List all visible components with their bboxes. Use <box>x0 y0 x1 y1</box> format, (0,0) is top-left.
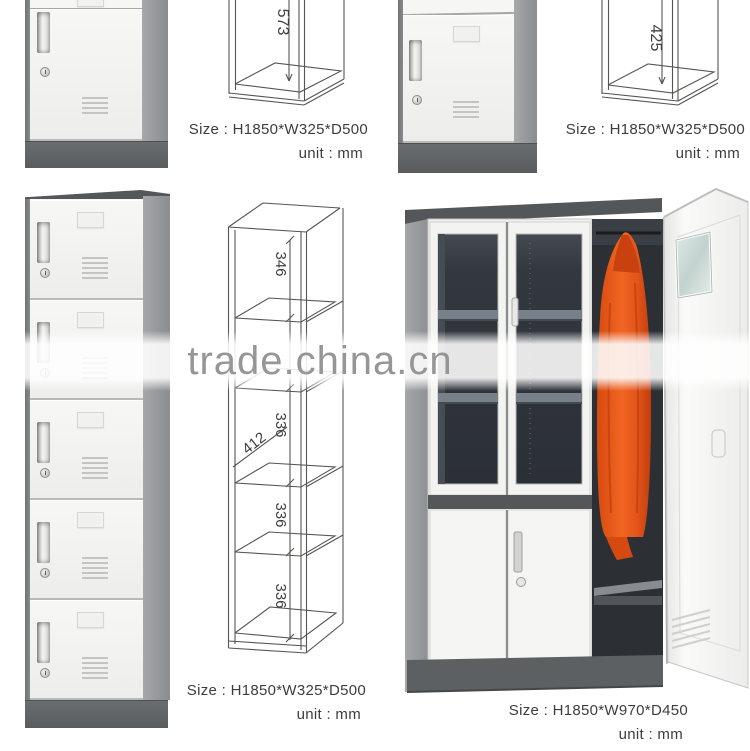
product-spec-sheet: 573 Size : H1850*W325*D500 unit : mm <box>0 0 750 751</box>
door-handle <box>37 622 50 663</box>
caption-top-middle: Size : H1850*W325*D500 unit : mm <box>160 121 368 163</box>
solid-door-left <box>430 510 506 665</box>
label-card <box>453 26 480 42</box>
locker-front <box>30 199 144 700</box>
hanging-coat <box>597 232 651 560</box>
label-card <box>77 612 104 628</box>
cabinet-side-panel <box>405 219 428 692</box>
caption-bottom-left: Size : H1850*W325*D500 unit : mm <box>158 682 366 724</box>
interior-shelf <box>438 310 498 319</box>
lock-keyhole <box>40 67 50 77</box>
size-text: Size : H1850*W325*D500 <box>158 682 366 700</box>
dim-label-336-b: 336 <box>272 502 289 527</box>
open-door <box>663 189 748 688</box>
dim-label-346: 346 <box>272 251 289 276</box>
locker-front <box>403 0 515 143</box>
unit-text: unit : mm <box>480 726 688 744</box>
door-handle <box>37 422 50 463</box>
size-text: Size : H1850*W325*D500 <box>160 121 368 139</box>
locker-base <box>398 143 537 173</box>
locker-side-panel <box>143 196 170 700</box>
vent-grille <box>82 257 108 281</box>
dim-label-412: 412 <box>239 429 269 458</box>
door-handle <box>37 222 50 263</box>
locker-base <box>25 700 168 728</box>
lock-keyhole <box>40 668 50 678</box>
watermark: trade.china.cn <box>0 339 640 384</box>
label-card <box>77 0 104 7</box>
dim-label-336-c: 336 <box>272 583 289 608</box>
locker-door <box>30 400 143 500</box>
mirror <box>676 232 712 298</box>
label-card <box>77 512 104 528</box>
vent-grille <box>453 101 479 121</box>
door-handle <box>512 298 518 326</box>
label-card <box>77 212 104 228</box>
lock-keyhole <box>40 268 50 278</box>
unit-text: unit : mm <box>537 145 745 163</box>
vent-grille <box>82 657 108 681</box>
lock-keyhole <box>40 568 50 578</box>
locker-door <box>30 500 143 600</box>
diagram-top-right: 425 <box>592 0 727 110</box>
interior-shelf <box>516 393 582 402</box>
vent-grille <box>82 557 108 581</box>
locker-door <box>30 200 143 300</box>
dim-label-425: 425 <box>647 25 664 52</box>
size-text: Size : H1850*W325*D500 <box>537 121 745 139</box>
lock-keyhole <box>40 468 50 478</box>
caption-top-right: Size : H1850*W325*D500 unit : mm <box>537 121 745 163</box>
diagram-top-middle: 573 <box>220 0 355 110</box>
door-handle <box>514 532 522 572</box>
locker-door <box>30 600 143 700</box>
diagram-bottom-left: 346 336 412 336 336 <box>215 195 355 665</box>
vent-grille <box>82 97 108 116</box>
interior-shelf <box>438 393 498 402</box>
interior-shelf <box>516 310 582 319</box>
door-handle <box>37 12 50 53</box>
unit-text: unit : mm <box>160 145 368 163</box>
locker-side-panel <box>142 0 168 141</box>
vent-grille <box>82 457 108 481</box>
watermark-band: trade.china.cn <box>0 331 750 391</box>
door-handle <box>409 40 422 81</box>
locker-side-panel <box>514 0 537 143</box>
lock-keyhole <box>517 578 526 587</box>
open-compartment <box>592 219 663 660</box>
dim-label-573: 573 <box>274 9 291 36</box>
locker-door <box>30 9 142 141</box>
locker-base <box>25 141 168 168</box>
locker-door <box>403 15 514 143</box>
mid-rail <box>428 495 592 509</box>
size-text: Size : H1850*W970*D450 <box>480 702 688 720</box>
solid-door-right <box>508 510 590 665</box>
photo-wardrobe-bottom-right <box>400 183 750 708</box>
caption-bottom-right: Size : H1850*W970*D450 unit : mm <box>480 702 688 744</box>
door-latch <box>712 430 725 457</box>
label-card <box>77 412 104 428</box>
door-handle <box>37 522 50 563</box>
dim-label-336-a: 336 <box>272 412 289 437</box>
locker-front <box>30 0 143 141</box>
unit-text: unit : mm <box>158 706 366 724</box>
lock-keyhole <box>412 95 422 105</box>
label-card <box>77 312 104 328</box>
